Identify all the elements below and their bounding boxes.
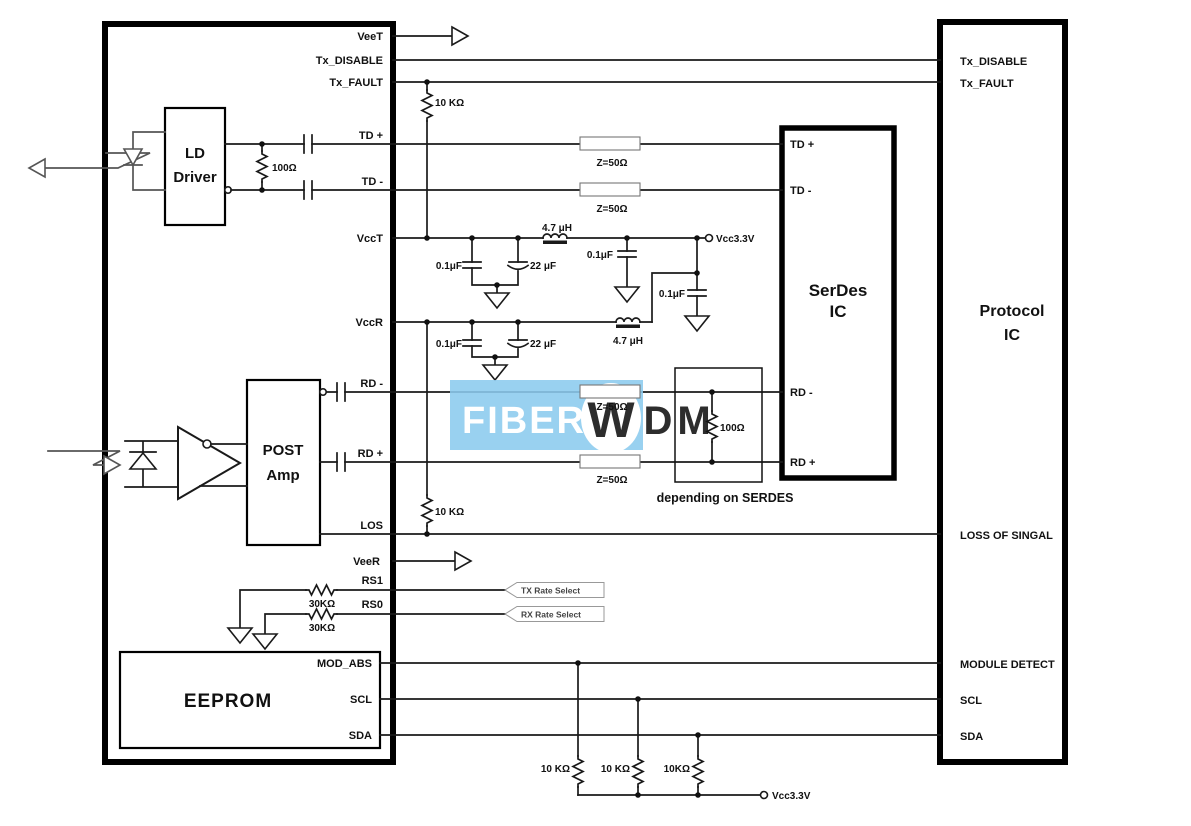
ground-vccr-filter	[685, 316, 709, 331]
pin-tx-disable: Tx_DISABLE	[316, 55, 383, 67]
pin-los: LOS	[360, 520, 383, 532]
vcc33-terminal-bottom	[761, 792, 768, 799]
label-r-td-term: 100Ω	[272, 163, 297, 174]
watermark-d-text: D	[644, 399, 673, 443]
net-scl	[380, 696, 940, 795]
capacitor-vccr-01uf	[463, 340, 481, 346]
net-sda	[380, 732, 940, 795]
module-pin-labels: VeeT Tx_DISABLE Tx_FAULT TD + TD - VccT …	[316, 31, 384, 742]
label-r-rs1: 30KΩ	[309, 599, 335, 610]
inductor-vcct	[543, 234, 567, 244]
serdes-pin-rd-minus: RD -	[790, 387, 813, 399]
serdes-title-1: SerDes	[809, 281, 868, 300]
post-amp-title-1: POST	[263, 442, 304, 459]
label-c-vcct-1: 0.1μF	[436, 261, 462, 272]
z50-box-rd-minus	[580, 385, 640, 398]
z50-box-td-minus	[580, 183, 640, 196]
capacitor-td-minus-series	[304, 181, 312, 199]
pin-rs0: RS0	[362, 599, 383, 611]
label-vcc-bottom: Vcc3.3V	[772, 791, 811, 802]
protocol-pin-scl: SCL	[960, 695, 982, 707]
protocol-pin-sda: SDA	[960, 731, 983, 743]
label-r-i2c-2: 10 KΩ	[601, 764, 630, 775]
pin-td-plus: TD +	[359, 130, 383, 142]
resistor-txfault-pullup	[422, 90, 432, 121]
pin-vccr: VccR	[355, 317, 383, 329]
capacitor-rd-minus-series	[337, 383, 345, 401]
capacitor-rd-plus-series	[337, 453, 345, 471]
label-l-vcct: 4.7 μH	[542, 223, 572, 234]
protocol-pin-tx-disable: Tx_DISABLE	[960, 56, 1027, 68]
ground-vccr	[483, 365, 507, 380]
capacitor-vcct-22uf	[508, 262, 528, 269]
ground-vcct	[485, 293, 509, 308]
pin-veet: VeeT	[357, 31, 383, 43]
serdes-title-2: IC	[830, 302, 847, 321]
postamp-inverting-bubble	[320, 389, 326, 395]
pin-scl: SCL	[350, 694, 372, 706]
ground-vcct-2	[615, 287, 639, 302]
label-z-rd-plus: Z=50Ω	[596, 475, 627, 486]
label-c-vccr-filter: 0.1μF	[659, 289, 685, 300]
ground-rs1	[228, 628, 252, 643]
inductor-vccr	[616, 318, 640, 328]
capacitor-vccr-22uf	[508, 340, 528, 347]
pin-vcct: VccT	[357, 233, 384, 245]
capacitor-vcct-01uf-2	[618, 251, 636, 257]
label-r-i2c-3: 10KΩ	[664, 764, 690, 775]
protocol-pin-tx-fault: Tx_FAULT	[960, 78, 1014, 90]
label-z-td-plus: Z=50Ω	[596, 158, 627, 169]
rx-rate-select-label: RX Rate Select	[521, 610, 581, 620]
z50-box-rd-plus	[580, 455, 640, 468]
optical-input-arrow	[48, 451, 120, 474]
label-l-vccr: 4.7 μH	[613, 336, 643, 347]
label-r-i2c-1: 10 KΩ	[541, 764, 570, 775]
schematic-canvas: TX Rate Select RX Rate Select FIBER W D …	[0, 0, 1191, 826]
rx-rate-select-tag: RX Rate Select	[505, 607, 604, 622]
serdes-pin-rd-plus: RD +	[790, 457, 815, 469]
net-veer	[393, 552, 471, 570]
watermark-w-text: W	[587, 392, 635, 448]
pin-rd-plus: RD +	[358, 448, 383, 460]
tx-rate-select-label: TX Rate Select	[521, 586, 580, 596]
pin-mod-abs: MOD_ABS	[317, 658, 372, 670]
z50-box-td-plus	[580, 137, 640, 150]
label-r-rs0: 30KΩ	[309, 623, 335, 634]
pin-tx-fault: Tx_FAULT	[329, 77, 383, 89]
watermark-m-text: M	[677, 399, 710, 443]
post-amp-title-2: Amp	[266, 467, 299, 484]
photodiode	[125, 441, 178, 487]
net-vcct	[393, 234, 713, 331]
capacitor-td-plus-series	[304, 135, 312, 153]
protocol-pin-los: LOSS OF SINGAL	[960, 530, 1053, 542]
pin-rs1: RS1	[362, 575, 383, 587]
label-z-rd-minus: Z=50Ω	[596, 402, 627, 413]
protocol-pin-module-detect: MODULE DETECT	[960, 659, 1055, 671]
label-c-vcct-2: 22 μF	[530, 261, 556, 272]
resistor-rs1	[306, 585, 337, 595]
ld-driver-title-1: LD	[185, 145, 205, 162]
label-z-td-minus: Z=50Ω	[596, 204, 627, 215]
capacitor-vcct-01uf	[463, 262, 481, 268]
label-r-txfault: 10 KΩ	[435, 98, 464, 109]
label-r-los: 10 KΩ	[435, 507, 464, 518]
label-c-vcct-3: 0.1μF	[587, 250, 613, 261]
serdes-pin-td-plus: TD +	[790, 139, 814, 151]
net-veet	[393, 27, 468, 45]
ground-rs0	[253, 634, 277, 649]
net-vcc-bottom	[578, 792, 768, 799]
protocol-ic-outline	[940, 22, 1065, 762]
resistor-i2c-3	[693, 756, 703, 787]
net-mod-abs	[380, 660, 940, 795]
preamp-inverting-bubble	[203, 440, 211, 448]
net-tx-fault	[393, 79, 940, 238]
protocol-title-1: Protocol	[980, 303, 1045, 320]
ld-driver-block	[165, 108, 225, 225]
label-c-vccr-2: 22 μF	[530, 339, 556, 350]
watermark-fiber-text: FIBER	[462, 400, 586, 442]
label-r-rd-term: 100Ω	[720, 423, 745, 434]
resistor-i2c-1	[573, 756, 583, 787]
eeprom-title: EEPROM	[184, 691, 272, 712]
net-los	[320, 531, 940, 537]
sfp-schematic-page: TX Rate Select RX Rate Select FIBER W D …	[0, 0, 1191, 826]
resistor-rs0	[306, 609, 337, 619]
resistor-i2c-2	[633, 756, 643, 787]
capacitor-vccr-filter-01uf	[688, 290, 706, 296]
tx-rate-select-tag: TX Rate Select	[505, 583, 604, 598]
protocol-title-2: IC	[1004, 327, 1020, 344]
label-c-vccr-1: 0.1μF	[436, 339, 462, 350]
protocol-pin-labels: Tx_DISABLE Tx_FAULT LOSS OF SINGAL MODUL…	[960, 56, 1055, 743]
post-amp-block	[247, 380, 320, 545]
net-td-plus	[225, 135, 782, 190]
pin-sda: SDA	[349, 730, 372, 742]
resistor-td-termination	[257, 151, 267, 182]
resistor-los-pullup	[422, 495, 432, 526]
net-rs0	[253, 609, 510, 649]
net-td-minus	[225, 181, 782, 199]
serdes-pin-td-minus: TD -	[790, 185, 812, 197]
pin-veer: VeeR	[353, 556, 380, 568]
pin-td-minus: TD -	[362, 176, 384, 188]
laser-diode	[124, 132, 165, 190]
serdes-note: depending on SERDES	[657, 491, 794, 505]
pin-rd-minus: RD -	[360, 378, 383, 390]
label-vcc-top: Vcc3.3V	[716, 234, 755, 245]
ld-driver-title-2: Driver	[173, 169, 217, 186]
preamp-triangle	[178, 427, 247, 499]
serdes-pin-labels: TD + TD - RD - RD +	[790, 139, 815, 469]
vcc33-terminal-top	[706, 235, 713, 242]
